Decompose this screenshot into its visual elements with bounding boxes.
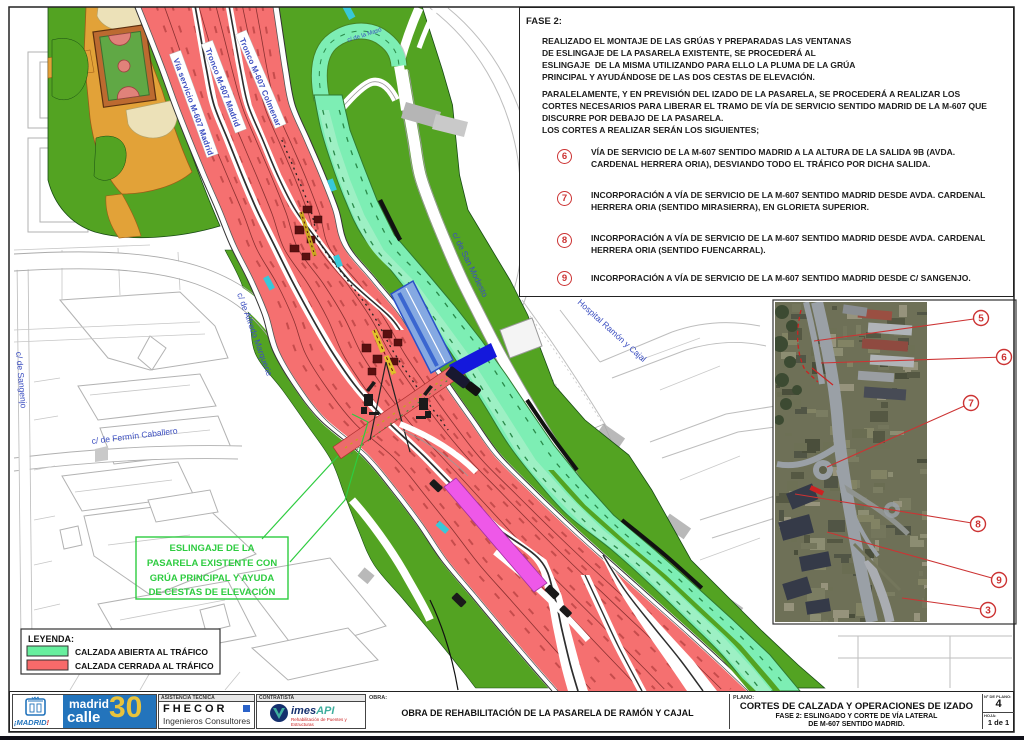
svg-text:¡MADRID!: ¡MADRID! [14,718,50,727]
svg-text:ESLINGAJE DE LA: ESLINGAJE DE LA [170,543,255,554]
svg-text:9: 9 [996,576,1002,587]
svg-text:GRÚA PRINCIPAL Y AYUDA: GRÚA PRINCIPAL Y AYUDA [150,572,275,584]
svg-text:CALZADA CERRADA AL TRÁFICO: CALZADA CERRADA AL TRÁFICO [75,661,214,671]
svg-text:6: 6 [1001,353,1007,364]
svg-text:CALZADA ABIERTA AL TRÁFICO: CALZADA ABIERTA AL TRÁFICO [75,647,208,657]
svg-text:8: 8 [975,520,981,531]
svg-text:LEYENDA:: LEYENDA: [28,634,74,644]
svg-text:PASARELA EXISTENTE CON: PASARELA EXISTENTE CON [147,558,278,569]
svg-text:3: 3 [985,606,991,617]
svg-text:5: 5 [978,314,984,325]
svg-text:7: 7 [968,399,974,410]
svg-text:DE CESTAS DE ELEVACIÓN: DE CESTAS DE ELEVACIÓN [149,586,276,598]
